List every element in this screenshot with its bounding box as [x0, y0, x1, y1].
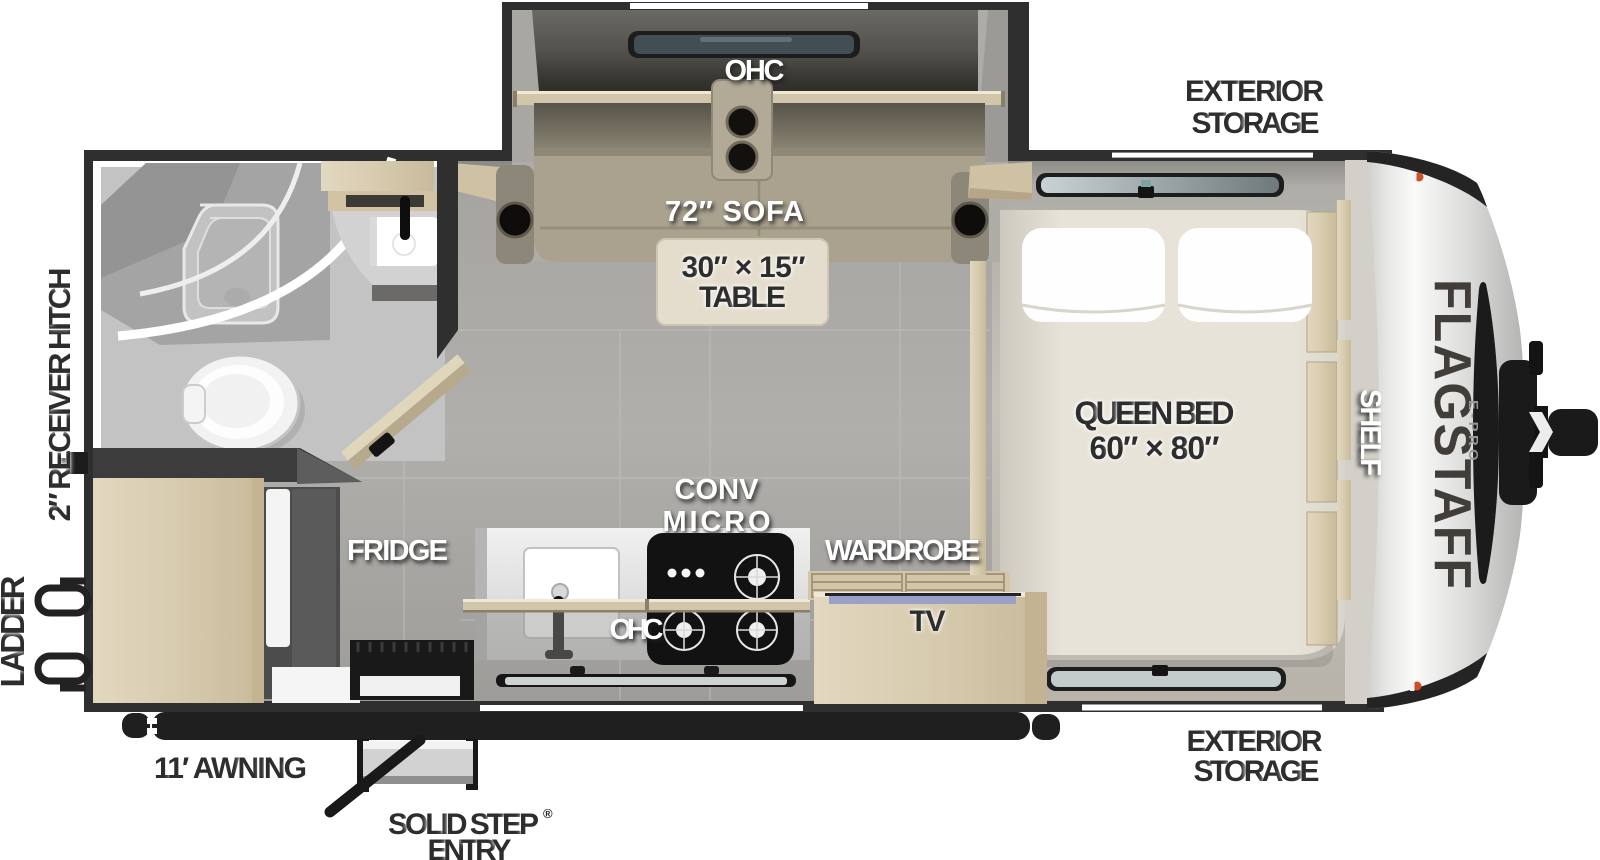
svg-text:11′ AWNING: 11′ AWNING: [154, 752, 308, 785]
svg-text:EXTERIOR: EXTERIOR: [1187, 725, 1324, 758]
svg-text:MICRO: MICRO: [663, 506, 772, 538]
svg-text:72″ SOFA: 72″ SOFA: [665, 196, 805, 228]
svg-text:30″ × 15″: 30″ × 15″: [682, 251, 807, 284]
svg-text:2″ RECEIVER HITCH: 2″ RECEIVER HITCH: [42, 267, 77, 522]
svg-text:OHC: OHC: [725, 55, 786, 87]
svg-text:STORAGE: STORAGE: [1192, 107, 1321, 140]
svg-text:QUEEN BED: QUEEN BED: [1075, 395, 1236, 431]
svg-text:TABLE: TABLE: [699, 281, 787, 314]
svg-text:TV: TV: [910, 605, 947, 638]
svg-text:WARDROBE: WARDROBE: [825, 535, 981, 567]
svg-text:E-PRO: E-PRO: [1466, 400, 1481, 464]
svg-text:OHC: OHC: [610, 614, 665, 646]
svg-text:SHELF: SHELF: [1354, 389, 1386, 477]
svg-text:EXTERIOR: EXTERIOR: [1185, 75, 1325, 108]
svg-text:®: ®: [543, 806, 554, 821]
svg-text:LADDER: LADDER: [0, 575, 31, 688]
svg-text:FRIDGE: FRIDGE: [347, 535, 449, 567]
svg-text:ENTRY: ENTRY: [428, 834, 513, 860]
svg-text:STORAGE: STORAGE: [1194, 755, 1321, 788]
svg-text:CONV: CONV: [675, 474, 760, 506]
svg-text:60″ × 80″: 60″ × 80″: [1090, 430, 1221, 466]
